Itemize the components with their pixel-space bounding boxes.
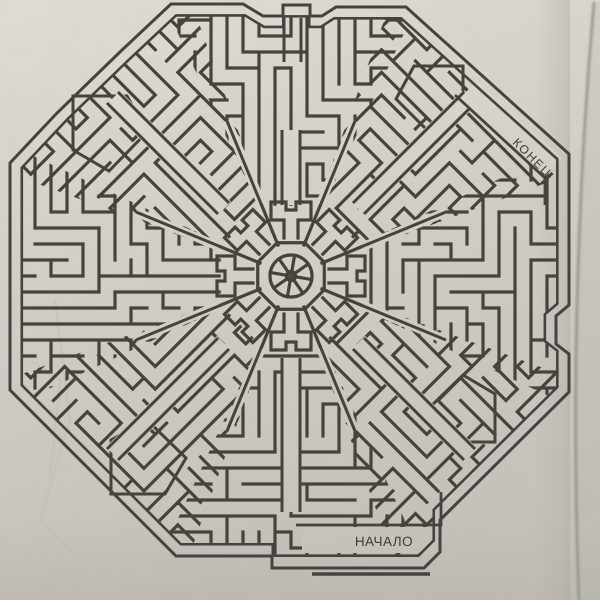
svg-text:НАЧАЛО: НАЧАЛО bbox=[355, 534, 413, 549]
